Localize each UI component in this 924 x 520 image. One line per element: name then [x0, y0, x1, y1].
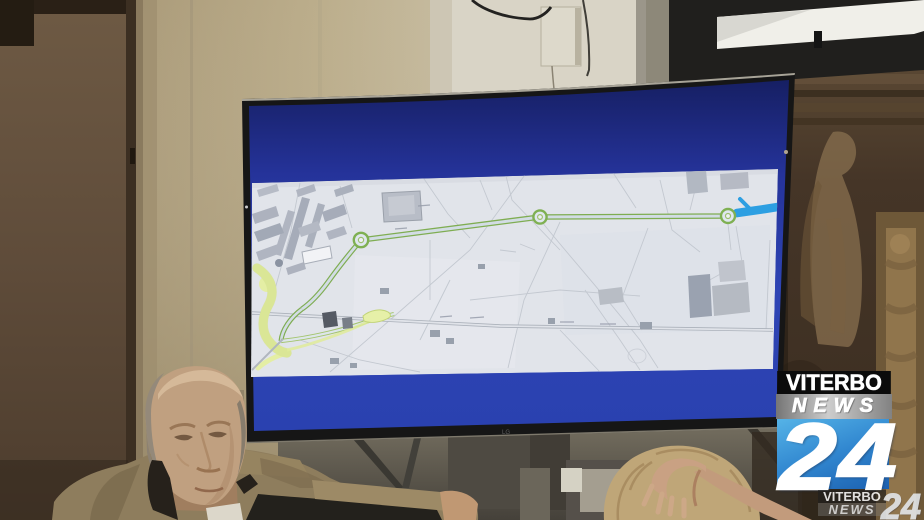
- svg-text:LG: LG: [502, 430, 510, 436]
